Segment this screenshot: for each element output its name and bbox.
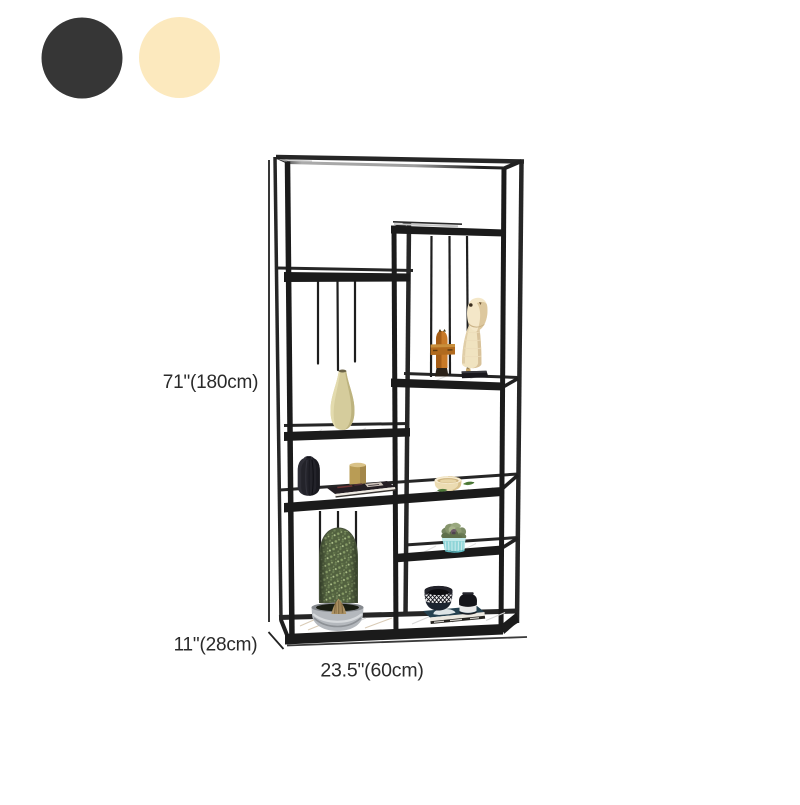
- svg-text:11"(28cm): 11"(28cm): [174, 635, 258, 656]
- svg-text:71"(180cm): 71"(180cm): [163, 372, 259, 393]
- svg-text:23.5"(60cm): 23.5"(60cm): [320, 660, 423, 682]
